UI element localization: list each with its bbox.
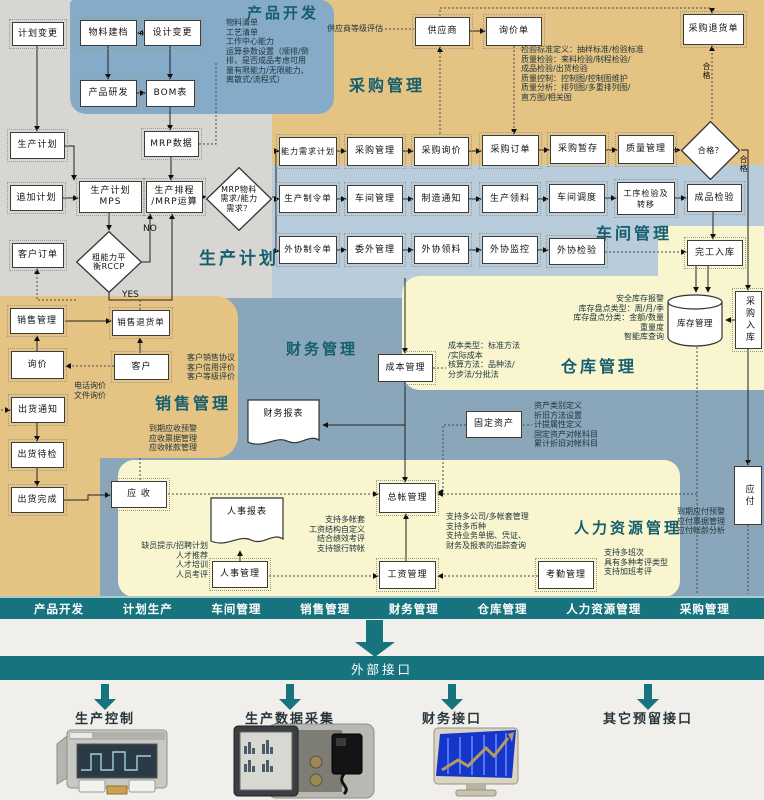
node-product-inspection: 成品检验	[687, 184, 742, 212]
node-ship-inspect: 出货待检	[11, 442, 64, 468]
big-down-arrow	[366, 620, 383, 643]
no-label: NO	[143, 224, 157, 234]
node-plan-change: 计划变更	[12, 22, 64, 46]
production-control-device-image	[55, 726, 173, 798]
node-inquiry: 询价	[11, 351, 64, 379]
erp-flowchart-page: 计划变更物料建档设计变更产品研发BOM表MRP数据生产计划追加计划生产计划MPS…	[0, 0, 764, 800]
node-hr-mgmt: 人事管理	[212, 561, 268, 588]
section-title-workshop: 车间管理	[596, 220, 672, 244]
supplier-eval-note: 供应商等级评估	[327, 24, 381, 34]
production-control-label: 生产控制	[75, 708, 135, 727]
node-outsource-picking: 外协领料	[414, 236, 469, 264]
node-prod-work-order: 生产制令单	[279, 185, 337, 213]
node-ledger-mgmt: 总帐管理	[379, 483, 436, 513]
node-design-change: 设计变更	[144, 20, 201, 46]
node-purchase-inquiry: 采购询价	[414, 137, 469, 166]
node-mrp-decision: MRP物料需求/能力需求？	[206, 167, 272, 231]
node-sales-mgmt: 销售管理	[10, 308, 64, 334]
node-prod-plan: 生产计划	[10, 132, 65, 159]
node-cost-mgmt: 成本管理	[378, 354, 433, 382]
node-attendance-mgmt: 考勤管理	[538, 561, 594, 589]
product-dev-note: 物料清单工艺清单工作中心能力运算参数设置（顺排/倒排，是否成品考虑可用量有限能力…	[226, 18, 322, 85]
node-qualified-decision: 合格？	[681, 121, 740, 180]
section-title-production-planning: 生产计划	[199, 244, 279, 269]
node-product-rd: 产品研发	[80, 80, 137, 107]
payable-note: 到期应付预警应付票据管理应付帐龄分析	[677, 507, 735, 536]
finance-interface-arrow	[448, 684, 456, 700]
node-finance-report: 财务报表	[246, 398, 321, 452]
node-prod-picking: 生产领料	[482, 185, 538, 213]
inventory-note: 安全库存报警库存盘点类型：周/月/季库存盘点分类：金额/数量重量度智能库查询	[566, 294, 664, 342]
big-down-arrow-head	[355, 642, 395, 657]
cost-note: 成本类型：标准方法/实际成本核算方法：品种法/分步法/分批法	[448, 341, 514, 379]
node-workshop-mgmt: 车间管理	[347, 185, 403, 213]
inquiry-method-note: 电话询价文件询价	[74, 381, 110, 400]
ledger-note: 支持多公司/多帐套管理支持多币种支持业务单据、凭证、财务及报表的追踪查询	[446, 512, 538, 550]
section-title-warehouse: 仓库管理	[561, 353, 637, 377]
quality-note: 检验标准定义：抽样标准/检验标准质量检验：来料检验/制程检验/成品检验/出货检验…	[521, 45, 645, 102]
node-outsource-work-order: 外协制令单	[279, 236, 337, 264]
node-fixed-asset: 固定资产	[466, 411, 522, 438]
node-inventory-mgmt: 库存管理	[666, 293, 724, 347]
node-purchase-mgmt: 采购管理	[347, 137, 403, 166]
node-scheduling: 生产排程/MRP运算	[146, 181, 203, 213]
module-navbar: 产品开发计划生产车间管理销售管理财务管理仓库管理人力资源管理采购管理	[0, 596, 764, 619]
nav-tab-采购管理[interactable]: 采购管理	[680, 601, 730, 617]
node-outsource-inspection: 外协检验	[549, 238, 605, 265]
data-acquisition-device-image	[232, 722, 377, 800]
node-hr-report: 人事报表	[209, 496, 285, 551]
node-sales-return: 销售退货单	[112, 310, 170, 336]
node-material-file: 物料建档	[80, 20, 137, 46]
finance-monitor-image	[428, 726, 524, 798]
nav-tab-仓库管理[interactable]: 仓库管理	[478, 601, 528, 617]
other-reserved-interface-arrow	[644, 684, 652, 700]
finance-interface-label: 财务接口	[422, 708, 482, 727]
node-purchase-instock: 采购入库	[735, 291, 762, 349]
nav-tab-财务管理[interactable]: 财务管理	[389, 601, 439, 617]
production-control-arrow	[101, 684, 109, 700]
node-mrp-data: MRP数据	[144, 131, 199, 157]
nav-tab-销售管理[interactable]: 销售管理	[300, 601, 350, 617]
connector-lines	[0, 0, 764, 800]
node-ship-notice: 出货通知	[11, 397, 65, 423]
node-purchase-temp: 采购暂存	[550, 135, 606, 164]
node-quality-mgmt: 质量管理	[618, 135, 674, 164]
section-title-sales: 销售管理	[155, 390, 231, 414]
section-title-finance: 财务管理	[286, 338, 358, 359]
node-supplier: 供应商	[415, 17, 470, 46]
node-ship-done: 出货完成	[11, 487, 64, 513]
node-payroll-mgmt: 工资管理	[379, 561, 436, 589]
attendance-note: 支持多班次具有多种考评类型支持加班考评	[604, 548, 682, 577]
node-add-plan: 追加计划	[10, 185, 63, 211]
qualified-up-label: 合格	[701, 62, 712, 80]
node-purchase-order: 采购订单	[482, 135, 539, 166]
node-rccp: 粗能力平衡RCCP	[76, 231, 142, 293]
nav-tab-产品开发[interactable]: 产品开发	[34, 601, 84, 617]
recruit-note: 缺员提示/招聘计划人才推荐人才培训人员考评	[128, 541, 208, 579]
node-purchase-return: 采购退货单	[683, 14, 744, 45]
external-interface-label: 外部接口	[351, 659, 413, 678]
asset-note: 资产类别定义折旧方法设置计提属性定义固定资产对帐科目累计折旧对帐科目	[534, 401, 620, 449]
nav-tab-人力资源管理[interactable]: 人力资源管理	[566, 601, 641, 617]
node-finish-instock: 完工入库	[687, 240, 743, 266]
production-data-acquisition-arrow	[286, 684, 294, 700]
other-reserved-interface-label: 其它预留接口	[603, 708, 693, 727]
node-outsource-mgmt: 委外管理	[347, 236, 403, 264]
node-customer: 客户	[114, 354, 169, 380]
external-interface-bar: 外部接口	[0, 656, 764, 680]
nav-tab-计划生产[interactable]: 计划生产	[123, 601, 173, 617]
customer-note: 客户销售协议客户信用评价客户等级评价	[187, 353, 239, 382]
node-bom: BOM表	[146, 80, 195, 107]
node-mps: 生产计划MPS	[79, 181, 142, 213]
node-outsource-monitor: 外协监控	[482, 236, 538, 264]
node-payable: 应付	[734, 466, 762, 525]
node-mfg-notice: 制造通知	[414, 185, 469, 213]
node-customer-order: 客户订单	[12, 243, 64, 268]
payroll-note: 支持多帐套工资结构自定义结合绩效考评支持银行转帐	[305, 515, 365, 553]
node-workshop-dispatch: 车间调度	[549, 184, 605, 213]
node-receivable: 应 收	[111, 481, 167, 508]
node-capacity-req-plan: 能力需求计划	[279, 137, 337, 166]
receivable-note: 到期应收预警应收票据管理应收帐款管理	[149, 424, 203, 453]
nav-tab-车间管理[interactable]: 车间管理	[211, 601, 261, 617]
section-title-hr: 人力资源管理	[574, 517, 682, 538]
section-title-purchasing: 采购管理	[349, 72, 425, 96]
node-inquiry-form: 询价单	[486, 17, 542, 46]
node-process-inspection: 工序检验及转移	[617, 182, 675, 215]
